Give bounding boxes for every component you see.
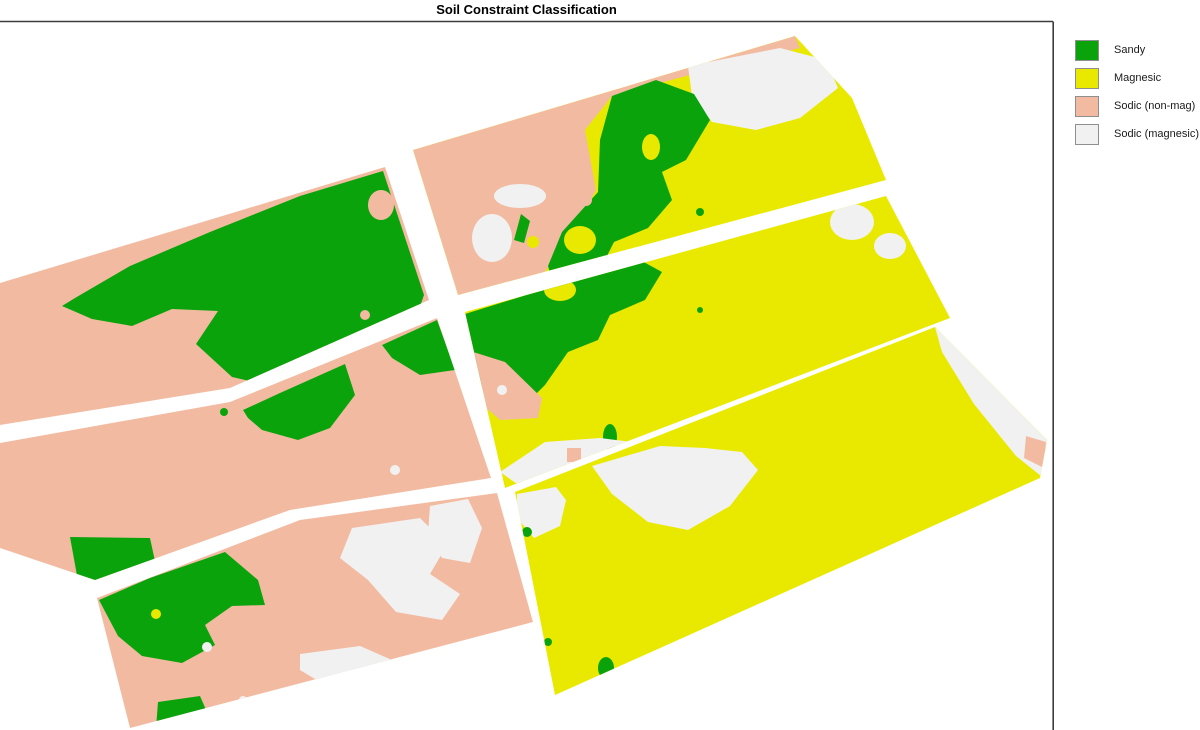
soil-patch-sodic_nonmag — [368, 190, 394, 220]
legend-label-sodic_mag: Sodic (magnesic) — [1114, 128, 1199, 140]
plot-window: Soil Constraint Classification SandyMagn… — [0, 0, 1200, 730]
soil-patch-sandy — [598, 657, 614, 679]
soil-patch-magnesic — [527, 236, 539, 248]
soil-patch-magnesic — [544, 279, 576, 301]
soil-patch-sodic_mag — [202, 642, 212, 652]
soil-map — [0, 0, 1200, 730]
soil-patch-magnesic — [564, 226, 596, 254]
soil-patch-sandy — [697, 307, 703, 313]
legend-label-magnesic: Magnesic — [1114, 72, 1161, 84]
soil-patch-sandy — [522, 527, 532, 537]
soil-patch-sodic_nonmag — [1001, 367, 1023, 385]
soil-patch-sandy — [220, 408, 228, 416]
legend-swatch-magnesic — [1075, 68, 1099, 89]
soil-patch-sodic_mag — [874, 233, 906, 259]
legend-swatch-sodic_nonmag — [1075, 96, 1099, 117]
legend-label-sandy: Sandy — [1114, 44, 1145, 56]
soil-patch-sodic_mag — [830, 204, 874, 240]
soil-patch-sodic_mag — [472, 214, 512, 262]
soil-patch-sodic_nonmag — [580, 194, 592, 206]
soil-patch-magnesic — [642, 134, 660, 160]
soil-patch-magnesic — [151, 609, 161, 619]
soil-patch-sandy — [696, 208, 704, 216]
legend-item-sodic_mag: Sodic (magnesic) — [1075, 120, 1199, 148]
legend-swatch-sodic_mag — [1075, 124, 1099, 145]
soil-patch-sodic_mag — [390, 465, 400, 475]
legend-item-sodic_nonmag: Sodic (non-mag) — [1075, 92, 1199, 120]
legend-label-sodic_nonmag: Sodic (non-mag) — [1114, 100, 1195, 112]
map-legend: SandyMagnesicSodic (non-mag)Sodic (magne… — [1075, 36, 1199, 148]
soil-patch-magnesic — [281, 363, 299, 373]
legend-item-magnesic: Magnesic — [1075, 64, 1199, 92]
legend-swatch-sandy — [1075, 40, 1099, 61]
legend-item-sandy: Sandy — [1075, 36, 1199, 64]
soil-patch-sodic_mag — [239, 696, 247, 704]
soil-patch-sodic_nonmag — [567, 448, 581, 462]
soil-patch-sodic_mag — [497, 385, 507, 395]
soil-patch-sodic_nonmag — [360, 310, 370, 320]
soil-patch-sandy — [544, 638, 552, 646]
soil-patch-sodic_mag — [494, 184, 546, 208]
